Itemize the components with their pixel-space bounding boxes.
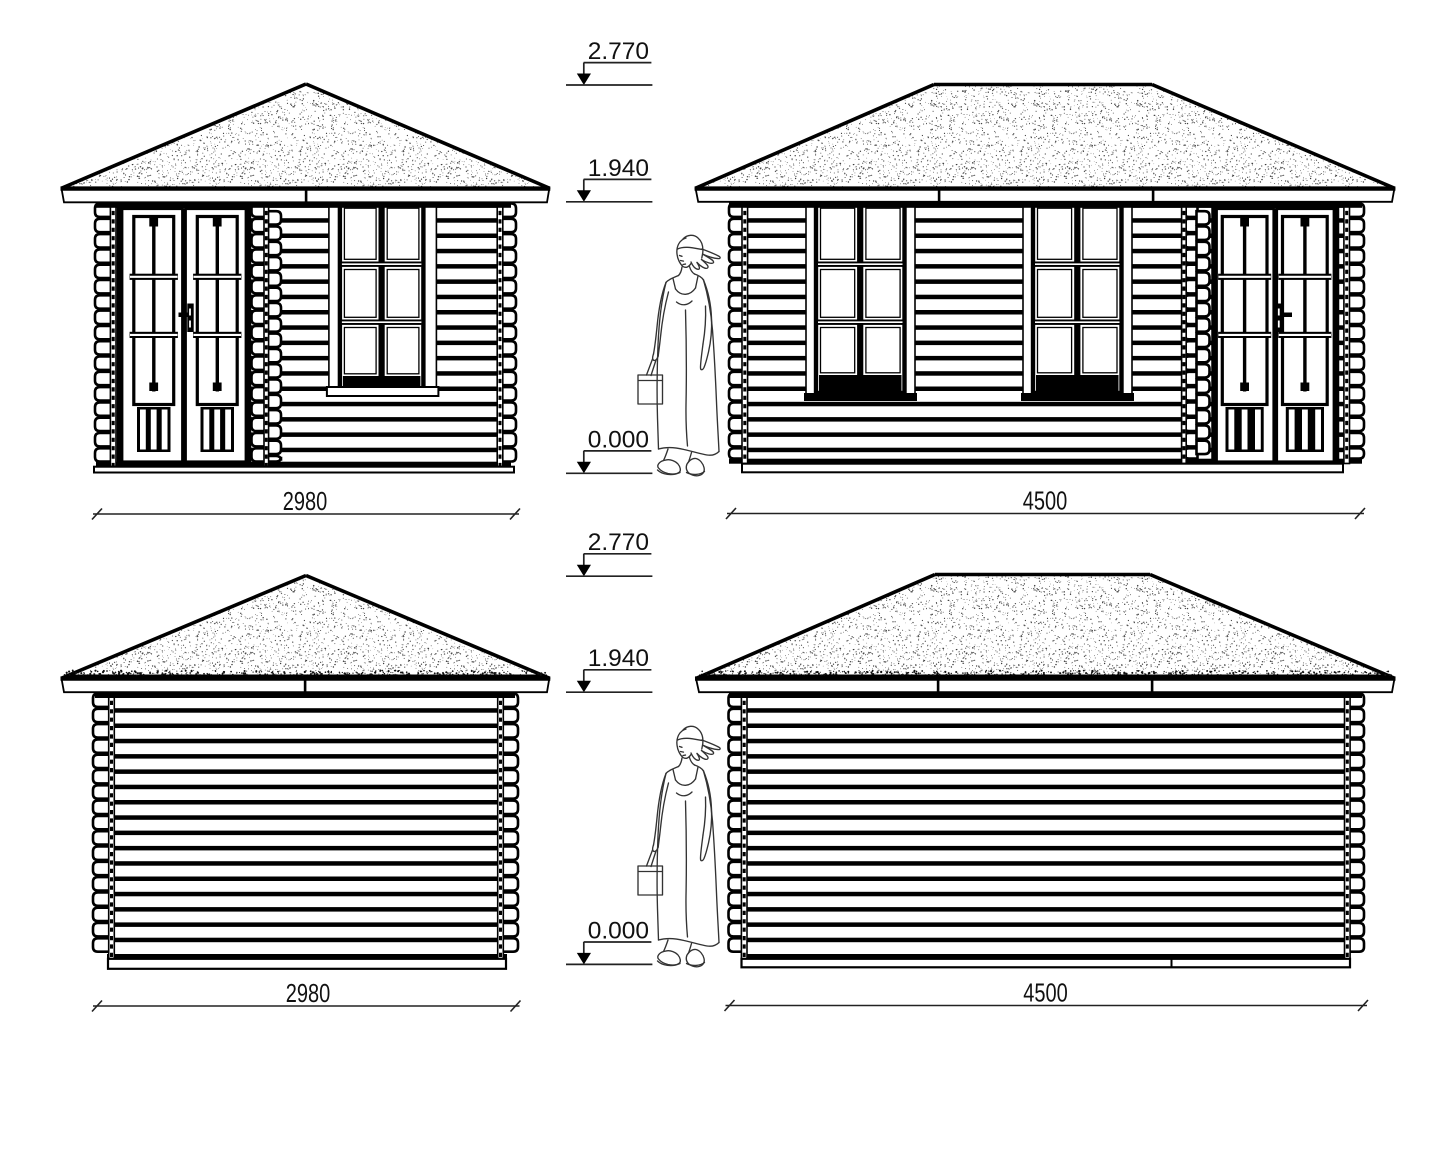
svg-text:2.770: 2.770 — [588, 529, 649, 556]
svg-text:2980: 2980 — [283, 486, 328, 516]
svg-text:1.940: 1.940 — [588, 645, 649, 672]
svg-text:4500: 4500 — [1023, 486, 1068, 516]
svg-text:2.770: 2.770 — [588, 38, 649, 65]
svg-text:0.000: 0.000 — [588, 426, 649, 453]
svg-text:2980: 2980 — [286, 978, 331, 1008]
svg-text:1.940: 1.940 — [588, 155, 649, 182]
svg-text:0.000: 0.000 — [588, 917, 649, 944]
svg-text:4500: 4500 — [1023, 978, 1068, 1008]
